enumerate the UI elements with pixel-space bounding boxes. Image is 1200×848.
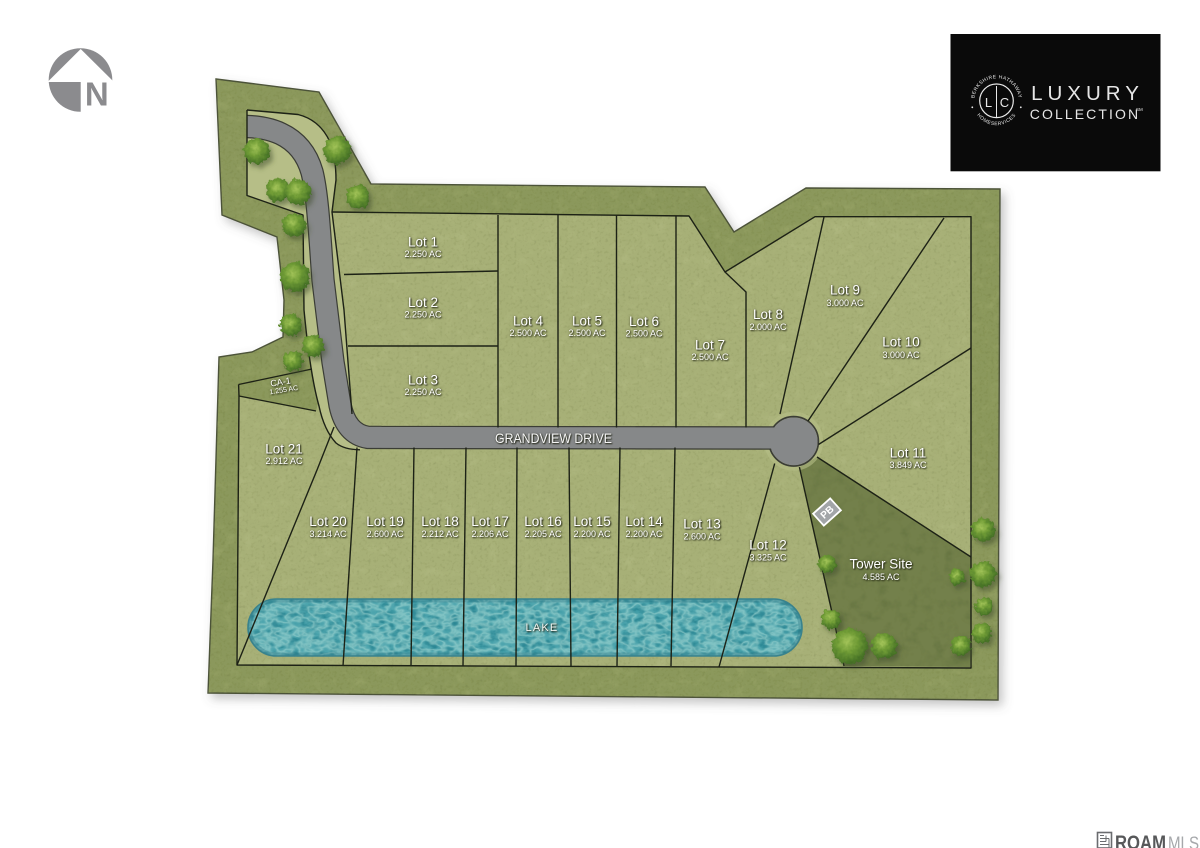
svg-text:LAKE: LAKE	[526, 622, 559, 634]
svg-text:Lot 17: Lot 17	[471, 514, 509, 529]
svg-text:Lot 14: Lot 14	[625, 514, 663, 529]
svg-text:ROAM: ROAM	[1115, 833, 1166, 848]
svg-text:2.206 AC: 2.206 AC	[471, 529, 509, 539]
svg-text:MLS: MLS	[1168, 833, 1199, 848]
svg-text:Lot 7: Lot 7	[695, 338, 725, 353]
svg-text:2.250 AC: 2.250 AC	[404, 249, 442, 259]
svg-text:Lot 12: Lot 12	[749, 538, 787, 553]
svg-text:SM: SM	[1136, 107, 1143, 112]
svg-text:2.200 AC: 2.200 AC	[573, 529, 611, 539]
svg-text:Lot 8: Lot 8	[753, 307, 783, 322]
svg-text:Tower Site: Tower Site	[849, 557, 912, 572]
svg-text:Lot 13: Lot 13	[683, 517, 721, 532]
svg-text:2.212 AC: 2.212 AC	[421, 529, 459, 539]
svg-text:2.500 AC: 2.500 AC	[625, 329, 663, 339]
svg-text:3.325 AC: 3.325 AC	[749, 553, 787, 563]
svg-text:Lot 10: Lot 10	[882, 335, 920, 350]
svg-text:2.500 AC: 2.500 AC	[509, 328, 547, 338]
svg-text:2.000 AC: 2.000 AC	[749, 322, 787, 332]
svg-text:Lot 19: Lot 19	[366, 514, 404, 529]
svg-text:Lot 6: Lot 6	[629, 314, 659, 329]
svg-text:3.214 AC: 3.214 AC	[309, 529, 347, 539]
svg-text:Lot 21: Lot 21	[265, 442, 303, 457]
svg-text:Lot 1: Lot 1	[408, 235, 438, 250]
svg-text:C: C	[1000, 95, 1009, 110]
svg-text:3.000 AC: 3.000 AC	[882, 350, 920, 360]
svg-text:2.600 AC: 2.600 AC	[683, 532, 721, 542]
svg-text:2.912 AC: 2.912 AC	[265, 456, 303, 466]
svg-text:2.600 AC: 2.600 AC	[366, 529, 404, 539]
svg-text:Lot 11: Lot 11	[890, 446, 927, 461]
svg-text:2.250 AC: 2.250 AC	[404, 387, 442, 397]
svg-text:2.500 AC: 2.500 AC	[691, 352, 729, 362]
svg-text:2.250 AC: 2.250 AC	[404, 310, 442, 320]
svg-text:3.000 AC: 3.000 AC	[826, 298, 864, 308]
svg-text:GRANDVIEW DRIVE: GRANDVIEW DRIVE	[495, 430, 612, 446]
svg-text:Lot 18: Lot 18	[421, 514, 459, 529]
svg-text:2.200 AC: 2.200 AC	[625, 529, 663, 539]
svg-text:Lot 4: Lot 4	[513, 314, 544, 329]
svg-text:Lot 15: Lot 15	[573, 514, 611, 529]
svg-text:L: L	[985, 95, 992, 110]
svg-text:3.849 AC: 3.849 AC	[889, 460, 927, 470]
svg-text:Lot 2: Lot 2	[408, 295, 438, 310]
svg-text:Lot 16: Lot 16	[524, 514, 562, 529]
svg-text:Lot 20: Lot 20	[309, 514, 347, 529]
svg-text:Lot 3: Lot 3	[408, 373, 438, 388]
svg-text:N: N	[85, 76, 109, 113]
svg-text:Lot 5: Lot 5	[572, 314, 602, 329]
svg-text:2.500 AC: 2.500 AC	[568, 328, 606, 338]
svg-text:2.205 AC: 2.205 AC	[524, 529, 562, 539]
svg-text:Lot 9: Lot 9	[830, 283, 860, 298]
svg-text:LUXURY: LUXURY	[1031, 82, 1144, 105]
svg-text:4.585 AC: 4.585 AC	[862, 572, 900, 582]
svg-text:COLLECTION: COLLECTION	[1030, 106, 1140, 122]
